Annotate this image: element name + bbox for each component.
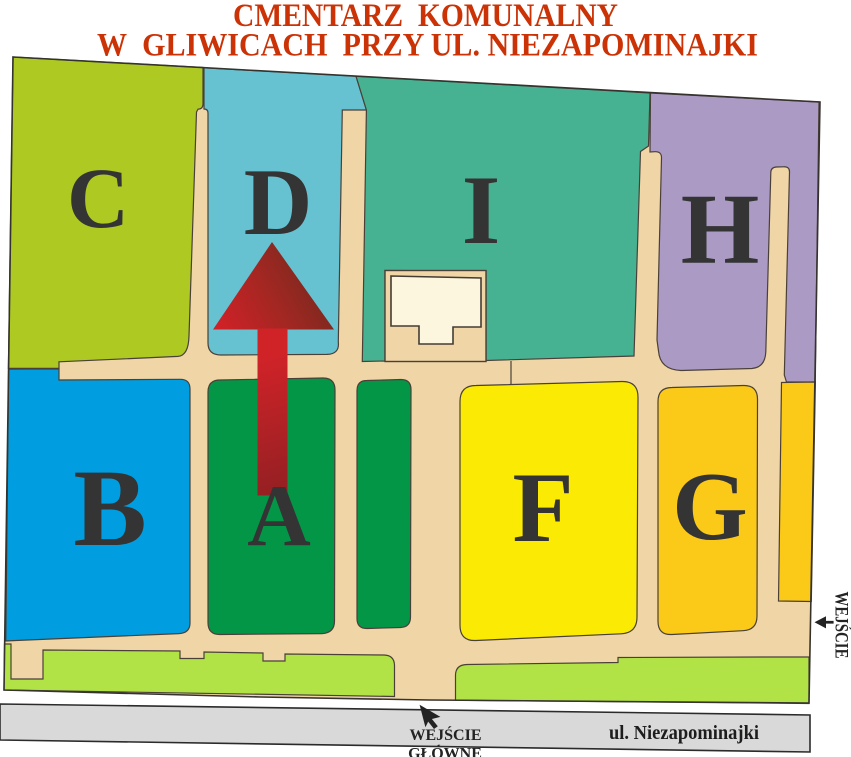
svg-text:G: G <box>672 453 747 560</box>
svg-text:I: I <box>462 156 501 265</box>
svg-text:H: H <box>681 173 760 285</box>
svg-text:ul. Niezapominajki: ul. Niezapominajki <box>609 722 759 744</box>
svg-text:A: A <box>247 468 311 565</box>
svg-text:WEJŚCIE: WEJŚCIE <box>409 725 481 744</box>
svg-text:WEJŚCIE: WEJŚCIE <box>831 592 851 659</box>
svg-text:C: C <box>67 150 129 246</box>
svg-text:F: F <box>512 452 573 563</box>
svg-text:D: D <box>244 149 313 255</box>
svg-text:W GLIWICACH PRZY UL. NIEZAPO: W GLIWICACH PRZY UL. NIEZAPOMINAJKI <box>97 28 758 64</box>
svg-text:GŁÓWNE: GŁÓWNE <box>408 744 482 757</box>
svg-text:B: B <box>73 447 146 569</box>
